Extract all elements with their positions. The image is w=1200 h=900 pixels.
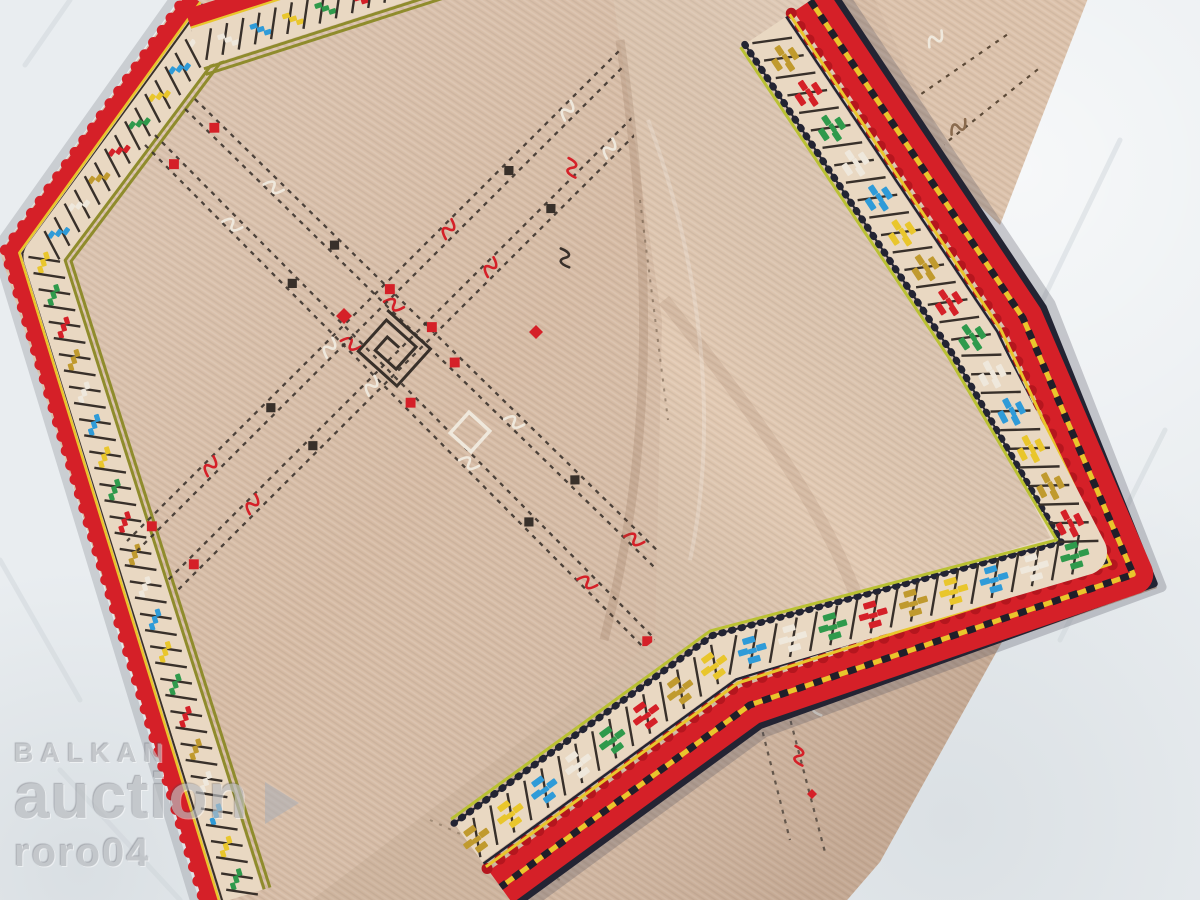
watermark-username: roro04 xyxy=(14,833,299,874)
watermark: BALKAN auction roro04 xyxy=(14,740,299,874)
play-triangle-icon xyxy=(265,782,299,824)
watermark-brand-main: auction xyxy=(14,764,249,829)
photo-scene: BALKAN auction roro04 xyxy=(0,0,1200,900)
